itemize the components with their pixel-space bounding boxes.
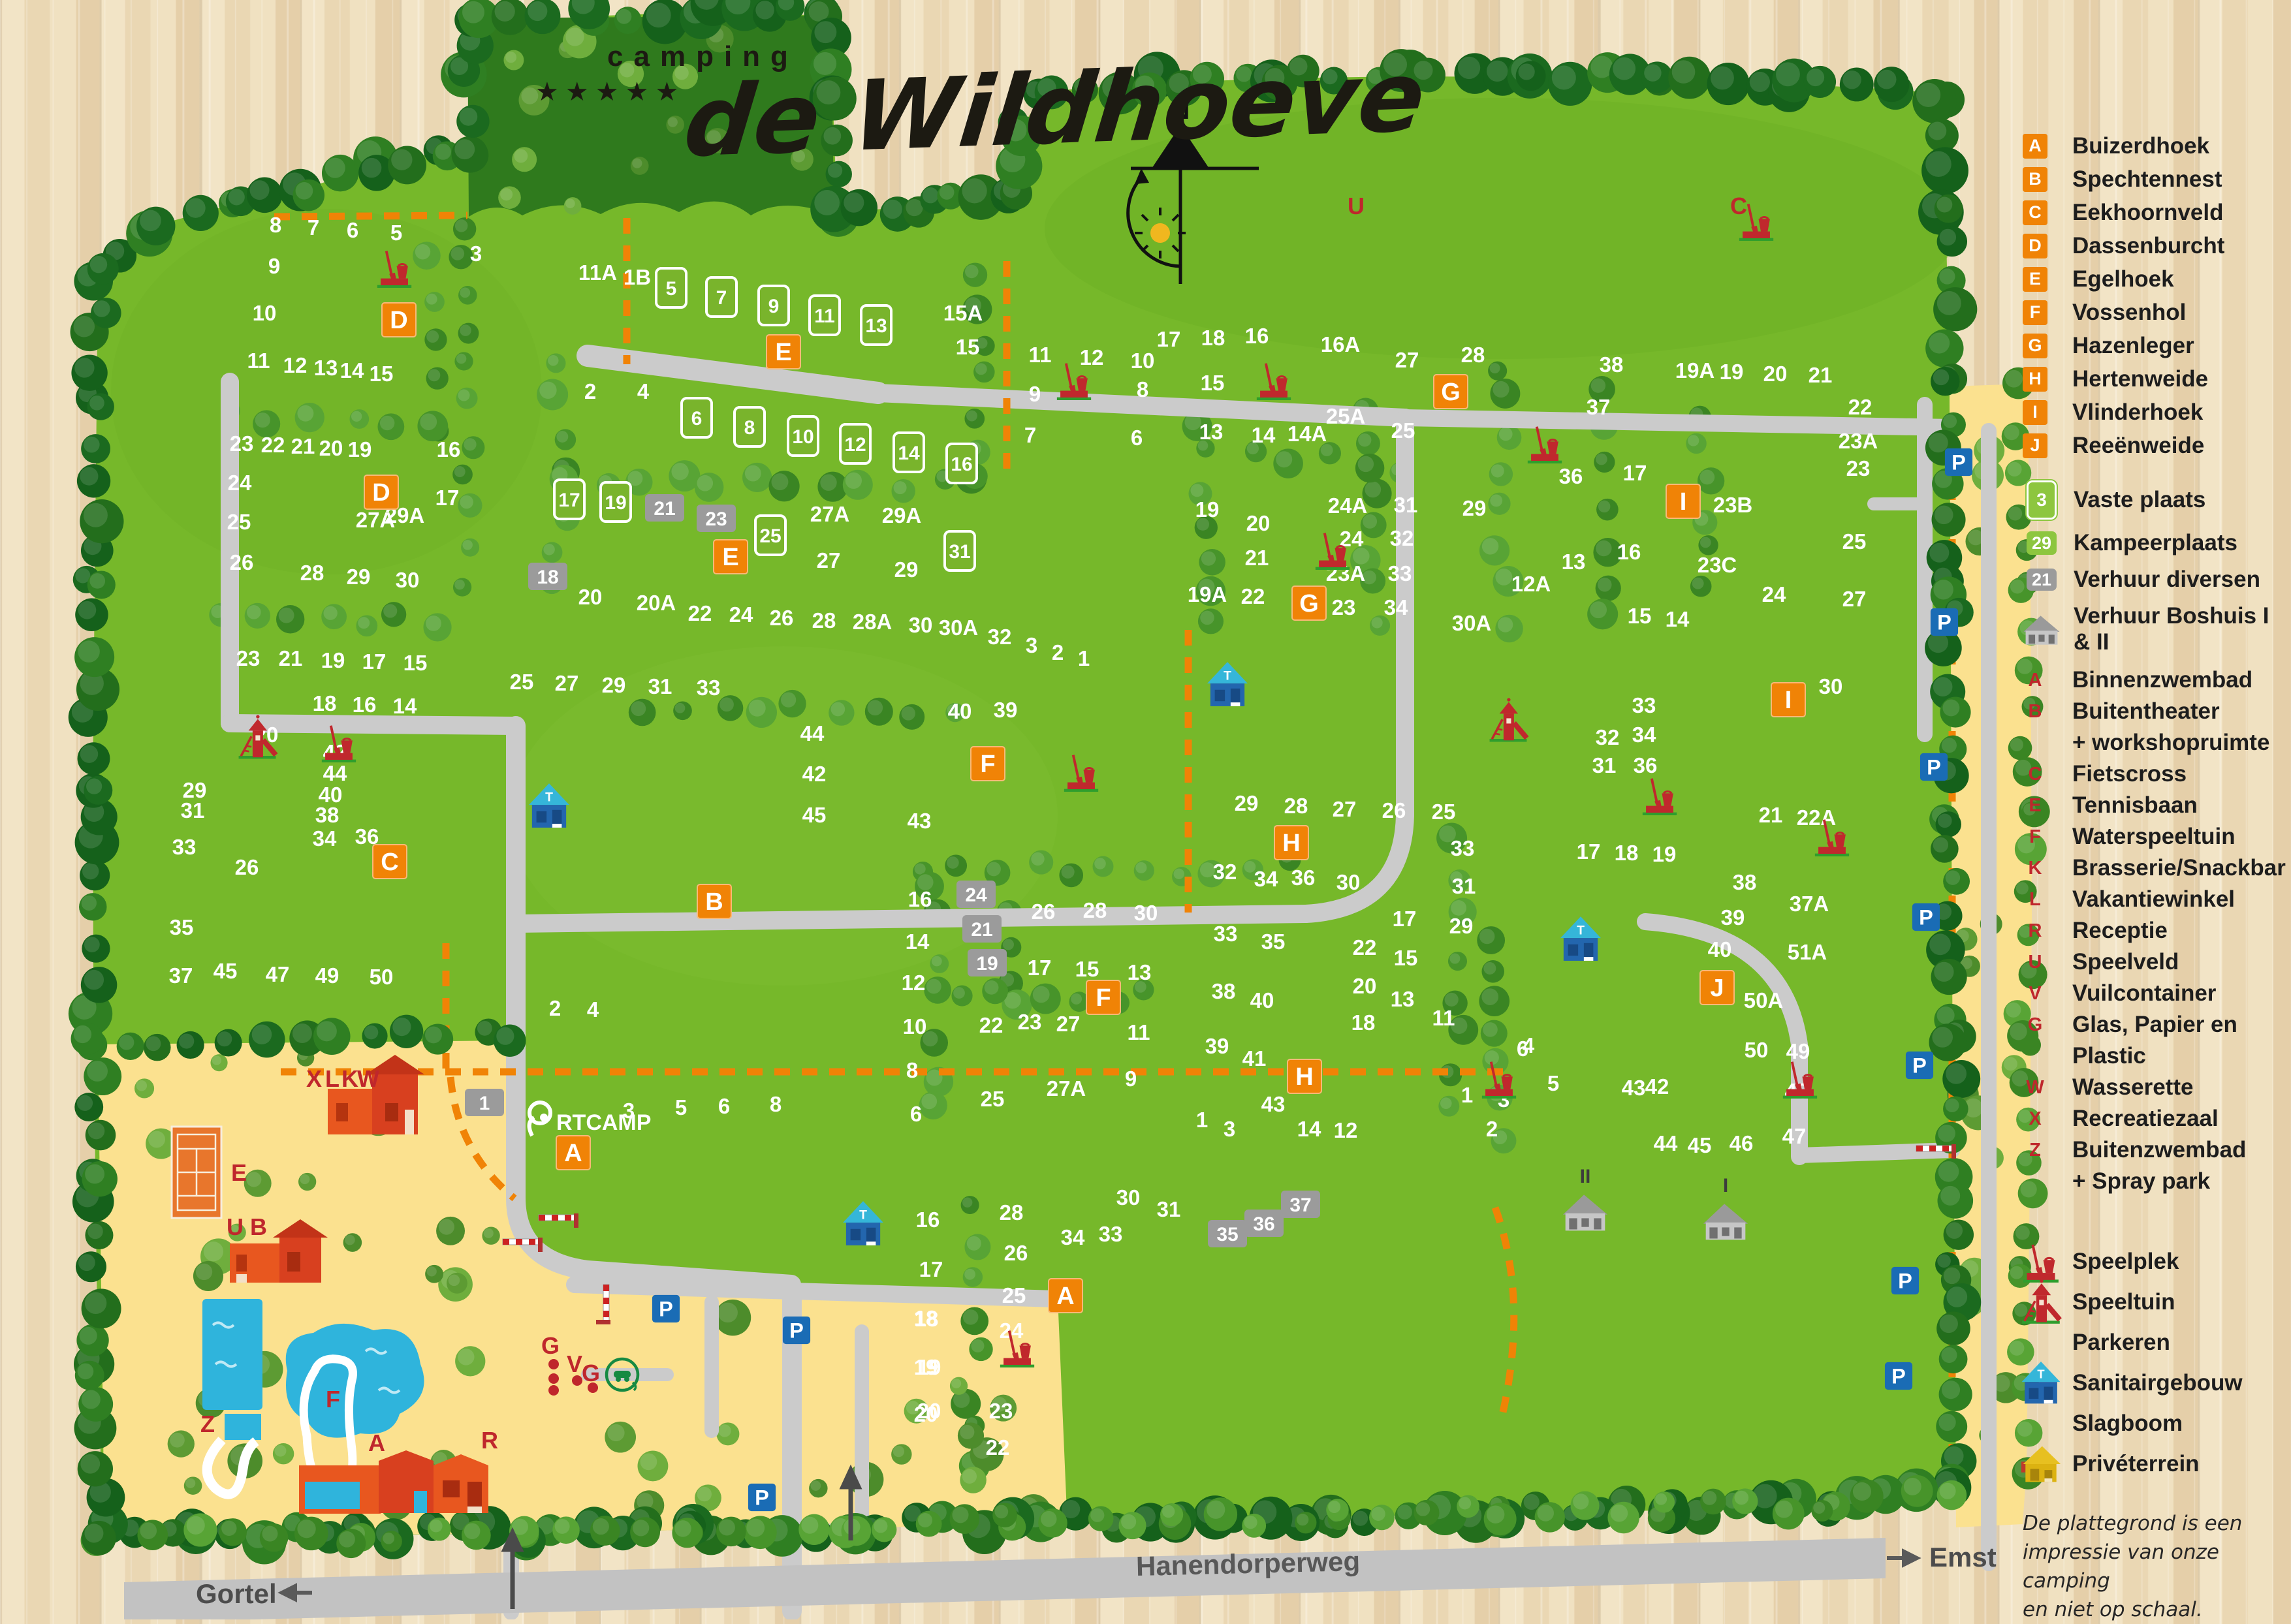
svg-text:28: 28 <box>1000 1200 1024 1225</box>
svg-text:28: 28 <box>1284 794 1308 818</box>
svg-text:G: G <box>541 1332 560 1359</box>
svg-text:27A: 27A <box>810 502 850 526</box>
svg-text:G: G <box>582 1360 600 1386</box>
svg-text:45: 45 <box>1688 1133 1712 1157</box>
legend-area-d: DDassenburcht <box>2023 229 2284 262</box>
svg-text:24: 24 <box>1762 582 1786 606</box>
svg-text:31: 31 <box>1592 753 1617 777</box>
svg-text:23A: 23A <box>1839 429 1878 453</box>
svg-text:35: 35 <box>1261 929 1286 954</box>
svg-text:19: 19 <box>1195 497 1220 522</box>
svg-text:20: 20 <box>914 1402 938 1426</box>
speelplek-icon <box>2019 1239 2063 1285</box>
svg-text:24: 24 <box>965 884 987 906</box>
facility-letter: E <box>2023 790 2047 821</box>
svg-text:19A: 19A <box>1188 582 1227 606</box>
svg-text:F: F <box>1096 984 1111 1012</box>
svg-text:3: 3 <box>470 242 482 266</box>
disclaimer-note: De plattegrond is een impressie van onze… <box>2023 1509 2284 1624</box>
facility-name: Vakantiewinkel <box>2072 884 2235 915</box>
svg-text:13: 13 <box>1128 960 1152 984</box>
svg-text:A: A <box>564 1140 582 1167</box>
svg-text:22: 22 <box>1353 935 1377 960</box>
legend-facilities: ABinnenzwembadBBuitentheater+ workshopru… <box>2023 664 2291 1197</box>
svg-text:7: 7 <box>308 215 319 240</box>
svg-text:5: 5 <box>390 221 402 245</box>
svg-text:3: 3 <box>623 1099 635 1123</box>
svg-text:6: 6 <box>1131 426 1143 450</box>
svg-text:21: 21 <box>291 434 315 458</box>
svg-text:25: 25 <box>1432 800 1456 824</box>
svg-text:36: 36 <box>1253 1213 1274 1235</box>
svg-text:16: 16 <box>1245 324 1269 348</box>
svg-text:W: W <box>357 1065 379 1092</box>
svg-text:39: 39 <box>1721 905 1745 929</box>
svg-text:20: 20 <box>1246 511 1271 535</box>
svg-text:23: 23 <box>236 646 261 670</box>
svg-text:21: 21 <box>1809 363 1833 387</box>
svg-text:18: 18 <box>1351 1010 1376 1035</box>
svg-text:16: 16 <box>1617 540 1641 564</box>
svg-text:1: 1 <box>1078 646 1090 670</box>
svg-text:L: L <box>325 1065 340 1092</box>
svg-text:H: H <box>1295 1063 1313 1091</box>
svg-text:18: 18 <box>537 567 558 588</box>
svg-text:8: 8 <box>1137 377 1148 401</box>
svg-text:C: C <box>1730 193 1747 219</box>
sanitair-icon <box>2019 1360 2063 1406</box>
facility-letter: C <box>2023 758 2047 790</box>
svg-text:1: 1 <box>1196 1108 1208 1132</box>
svg-text:19: 19 <box>914 1355 938 1379</box>
svg-text:2: 2 <box>1486 1117 1498 1141</box>
svg-text:19: 19 <box>1652 842 1677 866</box>
svg-text:39: 39 <box>1205 1034 1229 1058</box>
svg-text:14: 14 <box>393 694 417 718</box>
road-label-gortel: Gortel <box>196 1578 277 1610</box>
svg-text:23C: 23C <box>1698 553 1737 577</box>
svg-text:16A: 16A <box>1321 332 1361 356</box>
area-name: Spechtennest <box>2072 166 2222 193</box>
svg-text:22A: 22A <box>1797 805 1837 830</box>
facility-name: Vuilcontainer <box>2072 978 2216 1009</box>
svg-text:11: 11 <box>1128 1020 1150 1044</box>
svg-text:30: 30 <box>909 613 933 637</box>
svg-text:11: 11 <box>814 305 835 327</box>
svg-text:37: 37 <box>169 963 193 988</box>
facility-letter: L <box>2023 884 2047 915</box>
svg-text:9: 9 <box>1029 382 1041 406</box>
svg-text:29: 29 <box>1449 914 1474 938</box>
svg-text:38: 38 <box>1733 870 1757 894</box>
svg-text:28: 28 <box>1083 898 1107 922</box>
road-label-emst: Emst <box>1929 1542 1997 1573</box>
pitch-label: Verhuur diversen <box>2074 567 2260 593</box>
svg-text:20: 20 <box>1353 974 1377 998</box>
area-badge: G <box>2023 334 2047 358</box>
area-badge: C <box>2023 200 2047 225</box>
area-badge: E <box>2023 267 2047 292</box>
svg-text:32: 32 <box>988 625 1012 649</box>
parking-icon <box>1906 1052 1933 1079</box>
legend-facility-l: LVakantiewinkel <box>2023 884 2291 915</box>
facility-name: Glas, Papier en Plastic <box>2072 1009 2291 1072</box>
svg-text:11: 11 <box>1029 343 1052 367</box>
facility-name: Receptie <box>2072 915 2168 946</box>
svg-text:7: 7 <box>716 287 727 309</box>
facility-letter: X <box>2023 1103 2047 1134</box>
svg-text:5: 5 <box>675 1095 687 1119</box>
facility-name: Speelveld <box>2072 946 2179 978</box>
svg-text:40: 40 <box>1708 937 1732 961</box>
svg-text:19: 19 <box>605 492 626 514</box>
svg-text:33: 33 <box>1388 561 1412 586</box>
svg-text:29: 29 <box>894 557 919 582</box>
artcamp-logo-text: RTCAMP <box>556 1110 651 1135</box>
svg-text:30A: 30A <box>939 616 979 640</box>
svg-text:23: 23 <box>989 1399 1013 1423</box>
svg-text:15A: 15A <box>943 301 983 325</box>
svg-text:22: 22 <box>979 1013 1003 1037</box>
symbol-label: Privéterrein <box>2072 1451 2200 1477</box>
svg-text:26: 26 <box>235 855 259 879</box>
svg-text:22: 22 <box>688 601 712 625</box>
svg-text:10: 10 <box>1131 349 1155 373</box>
svg-text:38: 38 <box>315 803 340 827</box>
vaste-badge: 3 <box>2023 480 2061 520</box>
area-badge: I <box>2023 400 2047 425</box>
svg-text:31: 31 <box>648 674 672 698</box>
svg-text:20: 20 <box>319 436 343 460</box>
svg-text:6: 6 <box>910 1102 922 1126</box>
svg-text:F: F <box>980 751 995 778</box>
area-name: Eekhoornveld <box>2072 200 2223 226</box>
svg-text:23: 23 <box>705 508 727 530</box>
legend-facility-e: ETennisbaan <box>2023 790 2291 821</box>
svg-text:34: 34 <box>1632 723 1656 747</box>
svg-text:18: 18 <box>914 1306 938 1330</box>
tennis-court <box>172 1127 221 1218</box>
svg-text:25A: 25A <box>1326 404 1366 428</box>
svg-text:12: 12 <box>283 353 308 377</box>
svg-text:29: 29 <box>347 565 371 589</box>
svg-text:32: 32 <box>1390 526 1414 550</box>
svg-text:14A: 14A <box>1288 422 1327 446</box>
svg-text:29: 29 <box>602 673 626 697</box>
speeltuin-icon <box>2019 1279 2063 1326</box>
svg-text:32: 32 <box>1596 725 1620 749</box>
svg-text:10: 10 <box>253 301 277 325</box>
svg-text:7: 7 <box>1024 423 1036 447</box>
facility-letter: B <box>2023 696 2047 758</box>
svg-text:23: 23 <box>230 431 254 456</box>
legend-facility-w: WWasserette <box>2023 1072 2291 1103</box>
prive-icon <box>2019 1444 2063 1484</box>
svg-text:29: 29 <box>1462 496 1487 520</box>
svg-text:D: D <box>372 479 390 507</box>
svg-text:A: A <box>1056 1283 1074 1310</box>
svg-text:25: 25 <box>510 670 534 694</box>
pitch-label: Vaste plaats <box>2074 487 2205 513</box>
legend-area-a: ABuizerdhoek <box>2023 129 2284 163</box>
svg-text:18: 18 <box>313 691 337 715</box>
svg-text:12: 12 <box>902 971 926 995</box>
svg-text:31: 31 <box>949 541 970 563</box>
svg-text:21: 21 <box>1245 546 1269 570</box>
legend-symbol-sanitairgebouw: Sanitairgebouw <box>2019 1363 2291 1403</box>
svg-text:15: 15 <box>403 651 428 675</box>
legend-facility-r: RReceptie <box>2023 915 2291 946</box>
svg-text:6: 6 <box>691 408 703 429</box>
svg-text:20: 20 <box>1763 362 1788 386</box>
svg-text:6: 6 <box>347 218 358 242</box>
svg-text:J: J <box>1710 975 1724 1002</box>
svg-text:43: 43 <box>908 809 932 833</box>
parking-icon <box>1920 753 1948 781</box>
legend-pitch-verhuur: 21Verhuur diversen <box>2023 567 2290 593</box>
facility-letter: G <box>2023 1009 2047 1072</box>
svg-text:27: 27 <box>555 671 579 695</box>
svg-text:19: 19 <box>321 648 345 672</box>
svg-text:U: U <box>1348 193 1365 219</box>
svg-text:24: 24 <box>228 471 252 495</box>
svg-text:33: 33 <box>1214 922 1238 946</box>
svg-text:23: 23 <box>1018 1010 1042 1034</box>
svg-text:12: 12 <box>1080 345 1104 369</box>
facility-name: Buitenzwembad+ Spray park <box>2072 1134 2246 1197</box>
svg-text:5: 5 <box>666 278 677 300</box>
svg-text:23: 23 <box>1846 456 1871 480</box>
svg-text:8: 8 <box>770 1092 782 1116</box>
svg-text:19A: 19A <box>1675 358 1715 383</box>
svg-text:26: 26 <box>770 606 794 630</box>
legend-facility-x: XRecreatiezaal <box>2023 1103 2291 1134</box>
svg-text:E: E <box>231 1159 247 1186</box>
svg-text:5: 5 <box>1547 1071 1559 1095</box>
svg-text:8: 8 <box>906 1058 918 1082</box>
svg-text:C: C <box>381 849 398 876</box>
note-line: impressie van onze camping <box>2023 1538 2284 1595</box>
svg-text:28: 28 <box>1461 343 1485 367</box>
svg-text:25: 25 <box>1391 418 1415 443</box>
legend-area-e: EEgelhoek <box>2023 262 2284 296</box>
legend-facility-z: ZBuitenzwembad+ Spray park <box>2023 1134 2291 1197</box>
svg-text:11: 11 <box>247 349 270 373</box>
area-badge: B <box>2023 167 2047 192</box>
svg-text:16: 16 <box>916 1208 940 1232</box>
svg-text:42: 42 <box>1645 1074 1669 1099</box>
svg-text:38: 38 <box>1600 352 1624 377</box>
parking-icon <box>652 1295 680 1322</box>
svg-text:27: 27 <box>1056 1012 1081 1036</box>
svg-text:1A: 1A <box>590 260 617 285</box>
svg-text:17: 17 <box>1393 907 1417 931</box>
svg-text:22: 22 <box>261 433 285 457</box>
svg-text:30: 30 <box>396 568 420 592</box>
facility-letter: W <box>2023 1072 2047 1103</box>
svg-text:14: 14 <box>1297 1117 1321 1141</box>
svg-text:30A: 30A <box>1452 611 1492 635</box>
legend-facility-b: BBuitentheater+ workshopruimte <box>2023 696 2291 758</box>
svg-text:1B: 1B <box>624 265 651 289</box>
svg-text:27: 27 <box>1395 348 1419 372</box>
area-name: Egelhoek <box>2072 266 2174 292</box>
svg-text:17: 17 <box>1157 327 1181 351</box>
legend-symbols: SpeelplekSpeeltuinParkerenSanitairgebouw… <box>2019 1241 2291 1484</box>
svg-text:15: 15 <box>370 362 394 386</box>
svg-text:H: H <box>1282 830 1300 857</box>
legend-facility-a: ABinnenzwembad <box>2023 664 2291 696</box>
verhuur-badge: 21 <box>2023 569 2061 591</box>
svg-text:29: 29 <box>1235 791 1259 815</box>
svg-text:21: 21 <box>1759 803 1783 827</box>
svg-text:47: 47 <box>1782 1124 1807 1148</box>
kampeer-badge: 29 <box>2023 531 2061 555</box>
svg-text:17: 17 <box>919 1257 943 1281</box>
svg-text:31: 31 <box>1394 493 1418 517</box>
facility-name: Binnenzwembad <box>2072 664 2252 696</box>
svg-text:18: 18 <box>1201 326 1225 350</box>
svg-text:16: 16 <box>908 887 932 911</box>
svg-text:26: 26 <box>230 550 254 574</box>
legend-symbol-parkeren: Parkeren <box>2019 1322 2291 1363</box>
svg-text:B: B <box>705 888 723 916</box>
legend-area-g: GHazenleger <box>2023 329 2284 362</box>
parking-icon <box>1912 903 1940 931</box>
facility-name: Fietscross <box>2072 758 2187 790</box>
svg-text:E: E <box>722 544 738 571</box>
svg-text:33: 33 <box>1451 836 1475 860</box>
svg-text:17: 17 <box>1623 461 1647 485</box>
svg-text:19: 19 <box>348 437 372 461</box>
svg-text:13: 13 <box>865 315 887 337</box>
svg-text:44: 44 <box>1654 1131 1678 1155</box>
symbol-label: Speelplek <box>2072 1249 2179 1275</box>
svg-text:43: 43 <box>1622 1076 1646 1100</box>
svg-text:27A: 27A <box>1047 1076 1086 1101</box>
svg-text:36: 36 <box>1291 866 1316 890</box>
svg-text:41: 41 <box>1242 1046 1267 1070</box>
legend-symbol-speeltuin: Speeltuin <box>2019 1282 2291 1322</box>
legend-pitch-boshuis: Verhuur Boshuis I & II <box>2023 603 2290 655</box>
svg-text:25: 25 <box>759 525 781 547</box>
svg-text:Z: Z <box>200 1411 215 1437</box>
svg-text:34: 34 <box>1384 595 1408 619</box>
legend-facility-f: FWaterspeeltuin <box>2023 821 2291 852</box>
svg-text:1: 1 <box>578 260 590 285</box>
area-name: Vlinderhoek <box>2072 399 2203 426</box>
svg-text:50: 50 <box>1745 1038 1769 1062</box>
svg-text:15: 15 <box>1201 371 1225 395</box>
area-name: Vossenhol <box>2072 300 2186 326</box>
parking-icon <box>748 1484 776 1511</box>
svg-text:30: 30 <box>1116 1185 1141 1210</box>
svg-text:I: I <box>1723 1175 1728 1196</box>
svg-text:14: 14 <box>1252 423 1276 447</box>
svg-text:9: 9 <box>268 254 280 278</box>
map-canvas: T P <box>0 0 2291 1619</box>
svg-text:42: 42 <box>802 762 827 786</box>
svg-text:27: 27 <box>1842 587 1867 611</box>
svg-text:20: 20 <box>578 585 603 609</box>
svg-text:33: 33 <box>172 835 197 859</box>
svg-text:17: 17 <box>1577 839 1601 864</box>
parking-icon <box>1945 448 1972 476</box>
legend-facility-c: CFietscross <box>2023 758 2291 790</box>
facility-letter: A <box>2023 664 2047 696</box>
title-wildhoeve: de Wildhoeve <box>614 54 1037 181</box>
svg-text:11: 11 <box>1432 1006 1455 1030</box>
svg-text:17: 17 <box>1028 956 1052 980</box>
legend-pitch-vaste: 3Vaste plaats <box>2023 480 2290 520</box>
facility-letter: Z <box>2023 1134 2047 1197</box>
legend-symbol-slagboom: Slagboom <box>2019 1403 2291 1444</box>
site-title: camping ★★★★★ de Wildhoeve <box>535 40 1032 174</box>
svg-text:13: 13 <box>314 356 338 380</box>
svg-text:24: 24 <box>729 602 753 627</box>
svg-text:45: 45 <box>213 959 238 983</box>
svg-text:6: 6 <box>718 1094 730 1118</box>
boshuis-badge <box>2023 611 2061 648</box>
svg-text:15: 15 <box>1075 957 1099 981</box>
svg-text:1: 1 <box>1461 1083 1473 1107</box>
svg-text:31: 31 <box>1452 874 1476 898</box>
svg-text:34: 34 <box>313 826 337 851</box>
parking-icon <box>1931 608 1958 636</box>
svg-text:50: 50 <box>370 965 394 989</box>
svg-text:K: K <box>341 1065 358 1092</box>
svg-text:37: 37 <box>1587 395 1611 419</box>
svg-text:46: 46 <box>1730 1131 1754 1155</box>
legend-facility-g: GGlas, Papier en Plastic <box>2023 1009 2291 1072</box>
svg-text:4: 4 <box>587 997 599 1022</box>
svg-text:33: 33 <box>1632 693 1656 717</box>
svg-text:33: 33 <box>1099 1222 1123 1246</box>
svg-text:17: 17 <box>362 649 387 674</box>
svg-text:14: 14 <box>340 358 364 383</box>
legend-area-h: HHertenweide <box>2023 362 2284 396</box>
facility-name: Recreatiezaal <box>2072 1103 2219 1134</box>
svg-text:28: 28 <box>300 561 324 585</box>
facility-letter: K <box>2023 852 2047 884</box>
svg-text:39: 39 <box>994 698 1018 722</box>
svg-text:25: 25 <box>1002 1283 1026 1307</box>
legend-symbol-speelplek: Speelplek <box>2019 1241 2291 1282</box>
symbol-label: Sanitairgebouw <box>2072 1370 2243 1396</box>
facility-letter: R <box>2023 915 2047 946</box>
svg-text:30: 30 <box>1134 901 1158 925</box>
svg-text:16: 16 <box>353 693 377 717</box>
area-badge: A <box>2023 134 2047 159</box>
legend-area-f: FVossenhol <box>2023 296 2284 329</box>
svg-text:34: 34 <box>1254 867 1278 891</box>
svg-text:24A: 24A <box>1328 493 1368 518</box>
svg-text:20A: 20A <box>637 591 676 615</box>
area-badge: H <box>2023 367 2047 392</box>
svg-text:3: 3 <box>1224 1117 1235 1141</box>
svg-text:47: 47 <box>266 962 290 986</box>
legend-facility-k: KBrasserie/Snackbar <box>2023 852 2291 884</box>
facility-name: Wasserette <box>2072 1072 2193 1103</box>
svg-text:17: 17 <box>558 490 580 511</box>
symbol-label: Speeltuin <box>2072 1289 2175 1315</box>
legend-area-b: BSpechtennest <box>2023 163 2284 196</box>
svg-text:12: 12 <box>1334 1118 1358 1142</box>
svg-text:37A: 37A <box>1790 892 1829 916</box>
facility-letter: F <box>2023 821 2047 852</box>
svg-text:30: 30 <box>1336 870 1361 894</box>
svg-text:4: 4 <box>637 379 650 403</box>
